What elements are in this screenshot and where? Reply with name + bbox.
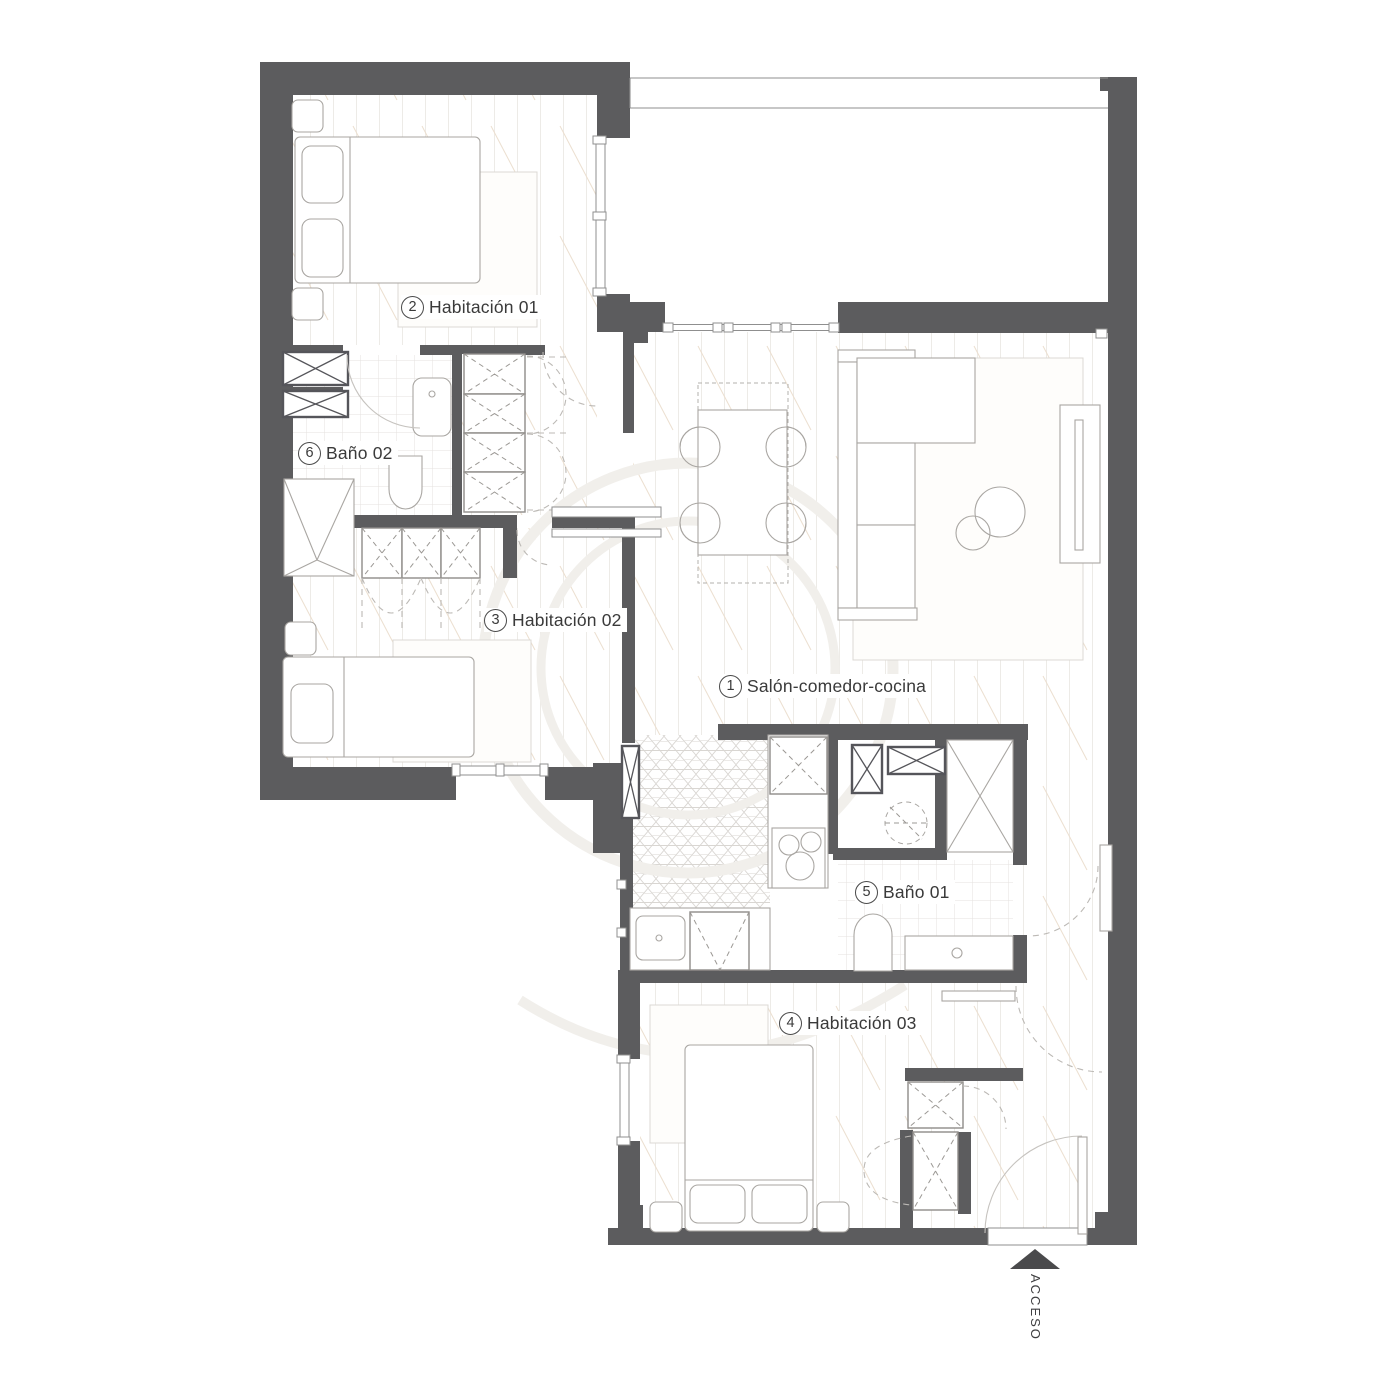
room-name: Habitación 03	[807, 1013, 917, 1034]
room-number-badge: 1	[719, 675, 742, 698]
room-name: Salón-comedor-cocina	[747, 676, 926, 697]
washbasin-icon	[413, 378, 451, 436]
entry-door-leaf-icon	[1078, 1137, 1087, 1234]
hallway-floor	[1023, 740, 1108, 1228]
floor-plan-drawing	[0, 0, 1400, 1400]
room-number-badge: 4	[779, 1012, 802, 1035]
access-label: ACCESO	[1028, 1274, 1043, 1341]
washer-cabinet-icon	[283, 352, 348, 385]
fridge-icon	[770, 737, 827, 794]
window-icon	[617, 880, 626, 889]
entry-threshold	[988, 1228, 1087, 1245]
room-number-badge: 5	[855, 881, 878, 904]
room-label-habitacion-01: 2 Habitación 01	[401, 295, 544, 319]
terrace-edge	[630, 78, 1108, 108]
pillow	[302, 146, 343, 203]
window-icon	[617, 928, 626, 937]
toilet-icon	[854, 914, 892, 971]
double-bed-icon	[295, 137, 480, 283]
shelf-icon	[942, 991, 1015, 1001]
pillow	[302, 219, 343, 277]
access-arrow-icon	[1010, 1249, 1060, 1269]
room-label-bano-01: 5 Baño 01	[855, 880, 955, 904]
room-number-badge: 6	[298, 442, 321, 465]
washer-cabinet-icon	[852, 745, 882, 793]
kitchen-hex-floor	[628, 735, 770, 915]
room-name: Habitación 01	[429, 297, 539, 318]
nightstand-icon	[292, 288, 323, 320]
dishwasher-icon	[690, 912, 749, 970]
window-icon	[617, 1055, 630, 1145]
window-icon	[452, 764, 548, 776]
vanity-sink-icon	[905, 936, 1013, 970]
room-label-salon-comedor-cocina: 1 Salón-comedor-cocina	[719, 674, 931, 698]
room-label-habitacion-02: 3 Habitación 02	[484, 608, 627, 632]
pillow	[291, 684, 333, 743]
room-name: Baño 01	[883, 882, 950, 903]
kitchen-sink-icon	[636, 916, 685, 960]
coffee-table-icon	[975, 487, 1025, 537]
room-label-bano-02: 6 Baño 02	[298, 441, 398, 465]
floor-plan-page: 1 Salón-comedor-cocina 2 Habitación 01 3…	[0, 0, 1400, 1400]
double-bed-icon	[685, 1045, 813, 1231]
cooktop-icon	[772, 828, 825, 888]
nightstand-icon	[285, 622, 316, 655]
room-name: Habitación 02	[512, 610, 622, 631]
nightstand-icon	[292, 100, 323, 132]
room-label-habitacion-03: 4 Habitación 03	[779, 1011, 922, 1035]
kitchen-door-leaf-icon	[622, 746, 639, 818]
nightstand-icon	[650, 1202, 682, 1232]
washer-cabinet-icon	[888, 747, 945, 774]
tv-console-icon	[1060, 405, 1100, 563]
single-bed-icon	[283, 657, 474, 757]
shower-icon	[284, 479, 354, 576]
dining-table-icon	[680, 383, 806, 583]
room-number-badge: 2	[401, 296, 424, 319]
washer-cabinet-icon	[283, 391, 348, 417]
room-number-badge: 3	[484, 609, 507, 632]
room-name: Baño 02	[326, 443, 393, 464]
nightstand-icon	[817, 1202, 849, 1232]
radiator-icon	[1100, 845, 1112, 931]
pillow	[752, 1185, 807, 1223]
shower-icon	[947, 740, 1013, 852]
pillow	[690, 1185, 745, 1223]
